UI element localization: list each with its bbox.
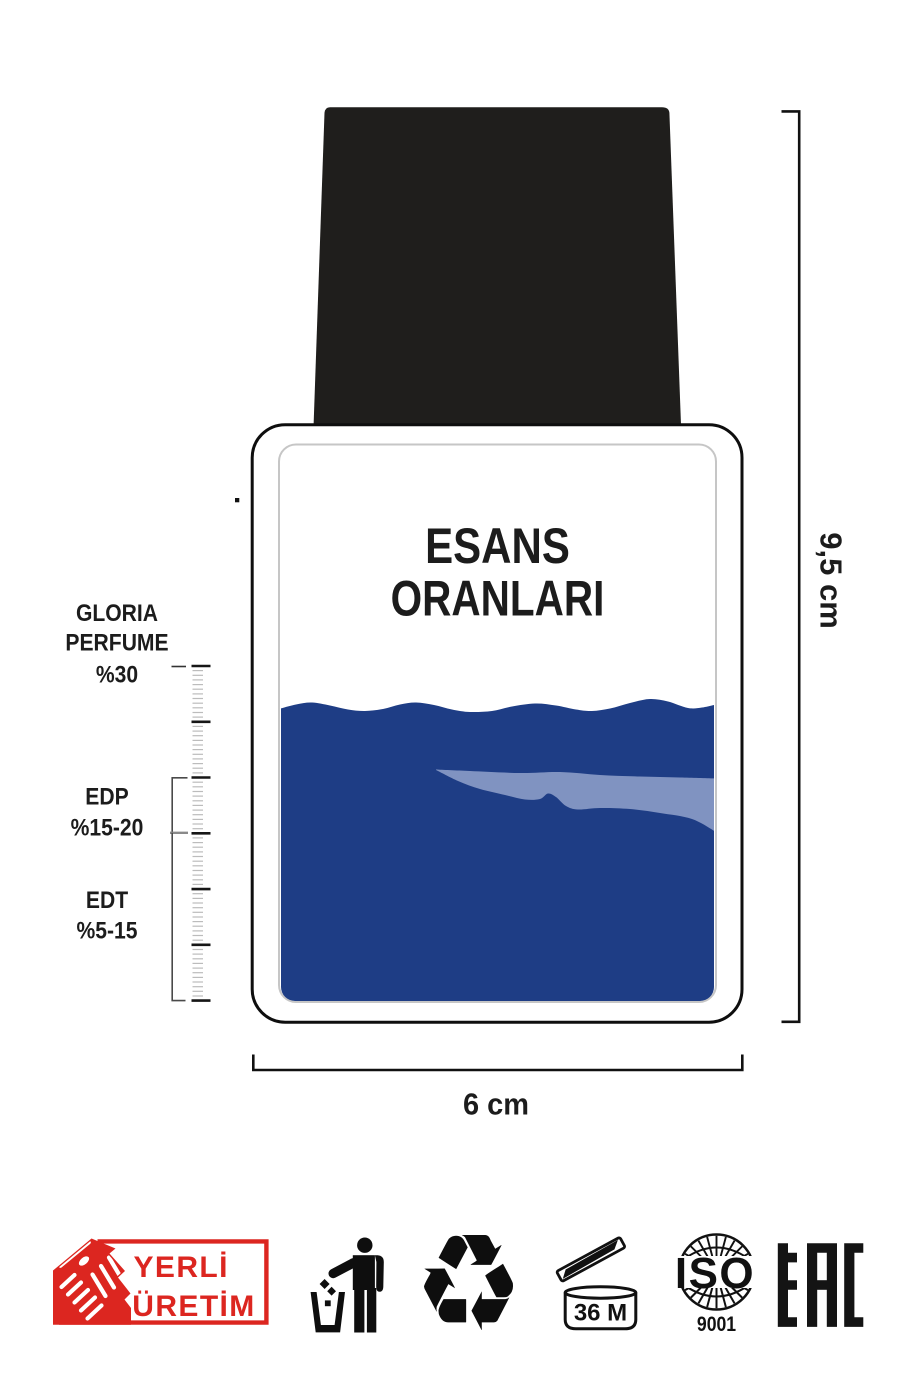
svg-text:ESANS: ESANS [425,518,570,574]
svg-text:9001: 9001 [697,1312,736,1336]
svg-text:%5-15: %5-15 [76,917,137,944]
svg-text:9,5 cm: 9,5 cm [814,532,849,629]
svg-text:%15-20: %15-20 [71,814,144,841]
svg-text:ORANLARI: ORANLARI [391,570,605,626]
svg-text:ÜRETİM: ÜRETİM [132,1290,255,1323]
svg-text:EDT: EDT [86,887,128,914]
svg-text:YERLİ: YERLİ [134,1251,229,1284]
svg-text:EDP: EDP [85,783,128,810]
svg-text:%30: %30 [96,661,138,688]
svg-text:36 M: 36 M [574,1300,627,1327]
svg-text:ISO: ISO [675,1249,755,1298]
svg-text:PERFUME: PERFUME [65,629,168,656]
svg-text:GLORIA: GLORIA [76,600,158,627]
svg-text:6 cm: 6 cm [463,1088,529,1122]
